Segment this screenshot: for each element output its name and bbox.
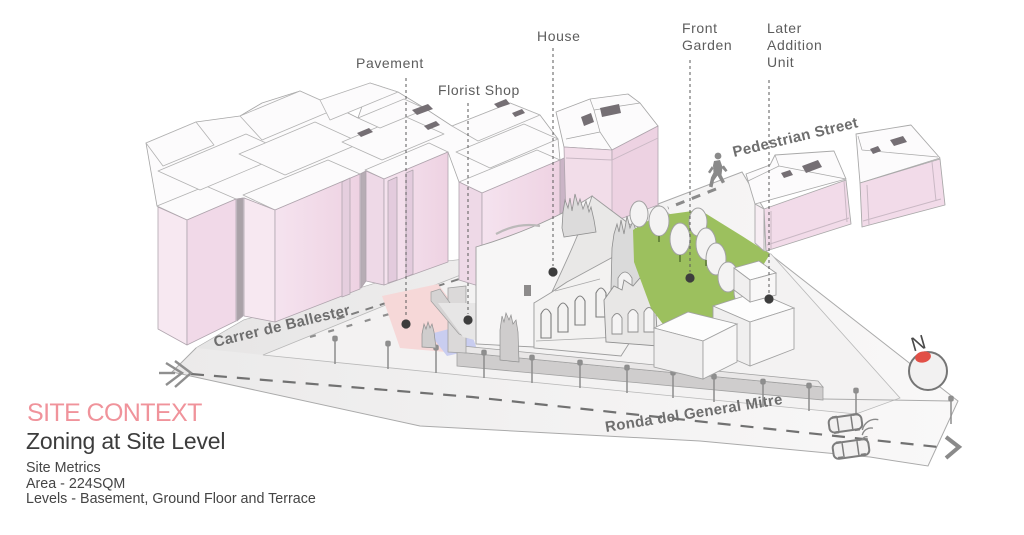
svg-text:House: House <box>537 28 580 44</box>
svg-text:SITE CONTEXT: SITE CONTEXT <box>27 399 202 427</box>
svg-text:Unit: Unit <box>767 54 794 70</box>
svg-text:Garden: Garden <box>682 37 732 53</box>
svg-text:Site Metrics: Site Metrics <box>26 460 101 476</box>
svg-text:Addition: Addition <box>767 37 822 53</box>
svg-text:Front: Front <box>682 20 718 36</box>
svg-text:Later: Later <box>767 20 802 36</box>
svg-text:Levels - Basement, Ground Floo: Levels - Basement, Ground Floor and Terr… <box>26 491 316 507</box>
svg-text:Area - 224SQM: Area - 224SQM <box>26 476 125 492</box>
svg-text:Pavement: Pavement <box>356 55 424 71</box>
svg-text:Florist Shop: Florist Shop <box>438 82 520 98</box>
svg-text:Zoning at Site Level: Zoning at Site Level <box>26 428 225 454</box>
